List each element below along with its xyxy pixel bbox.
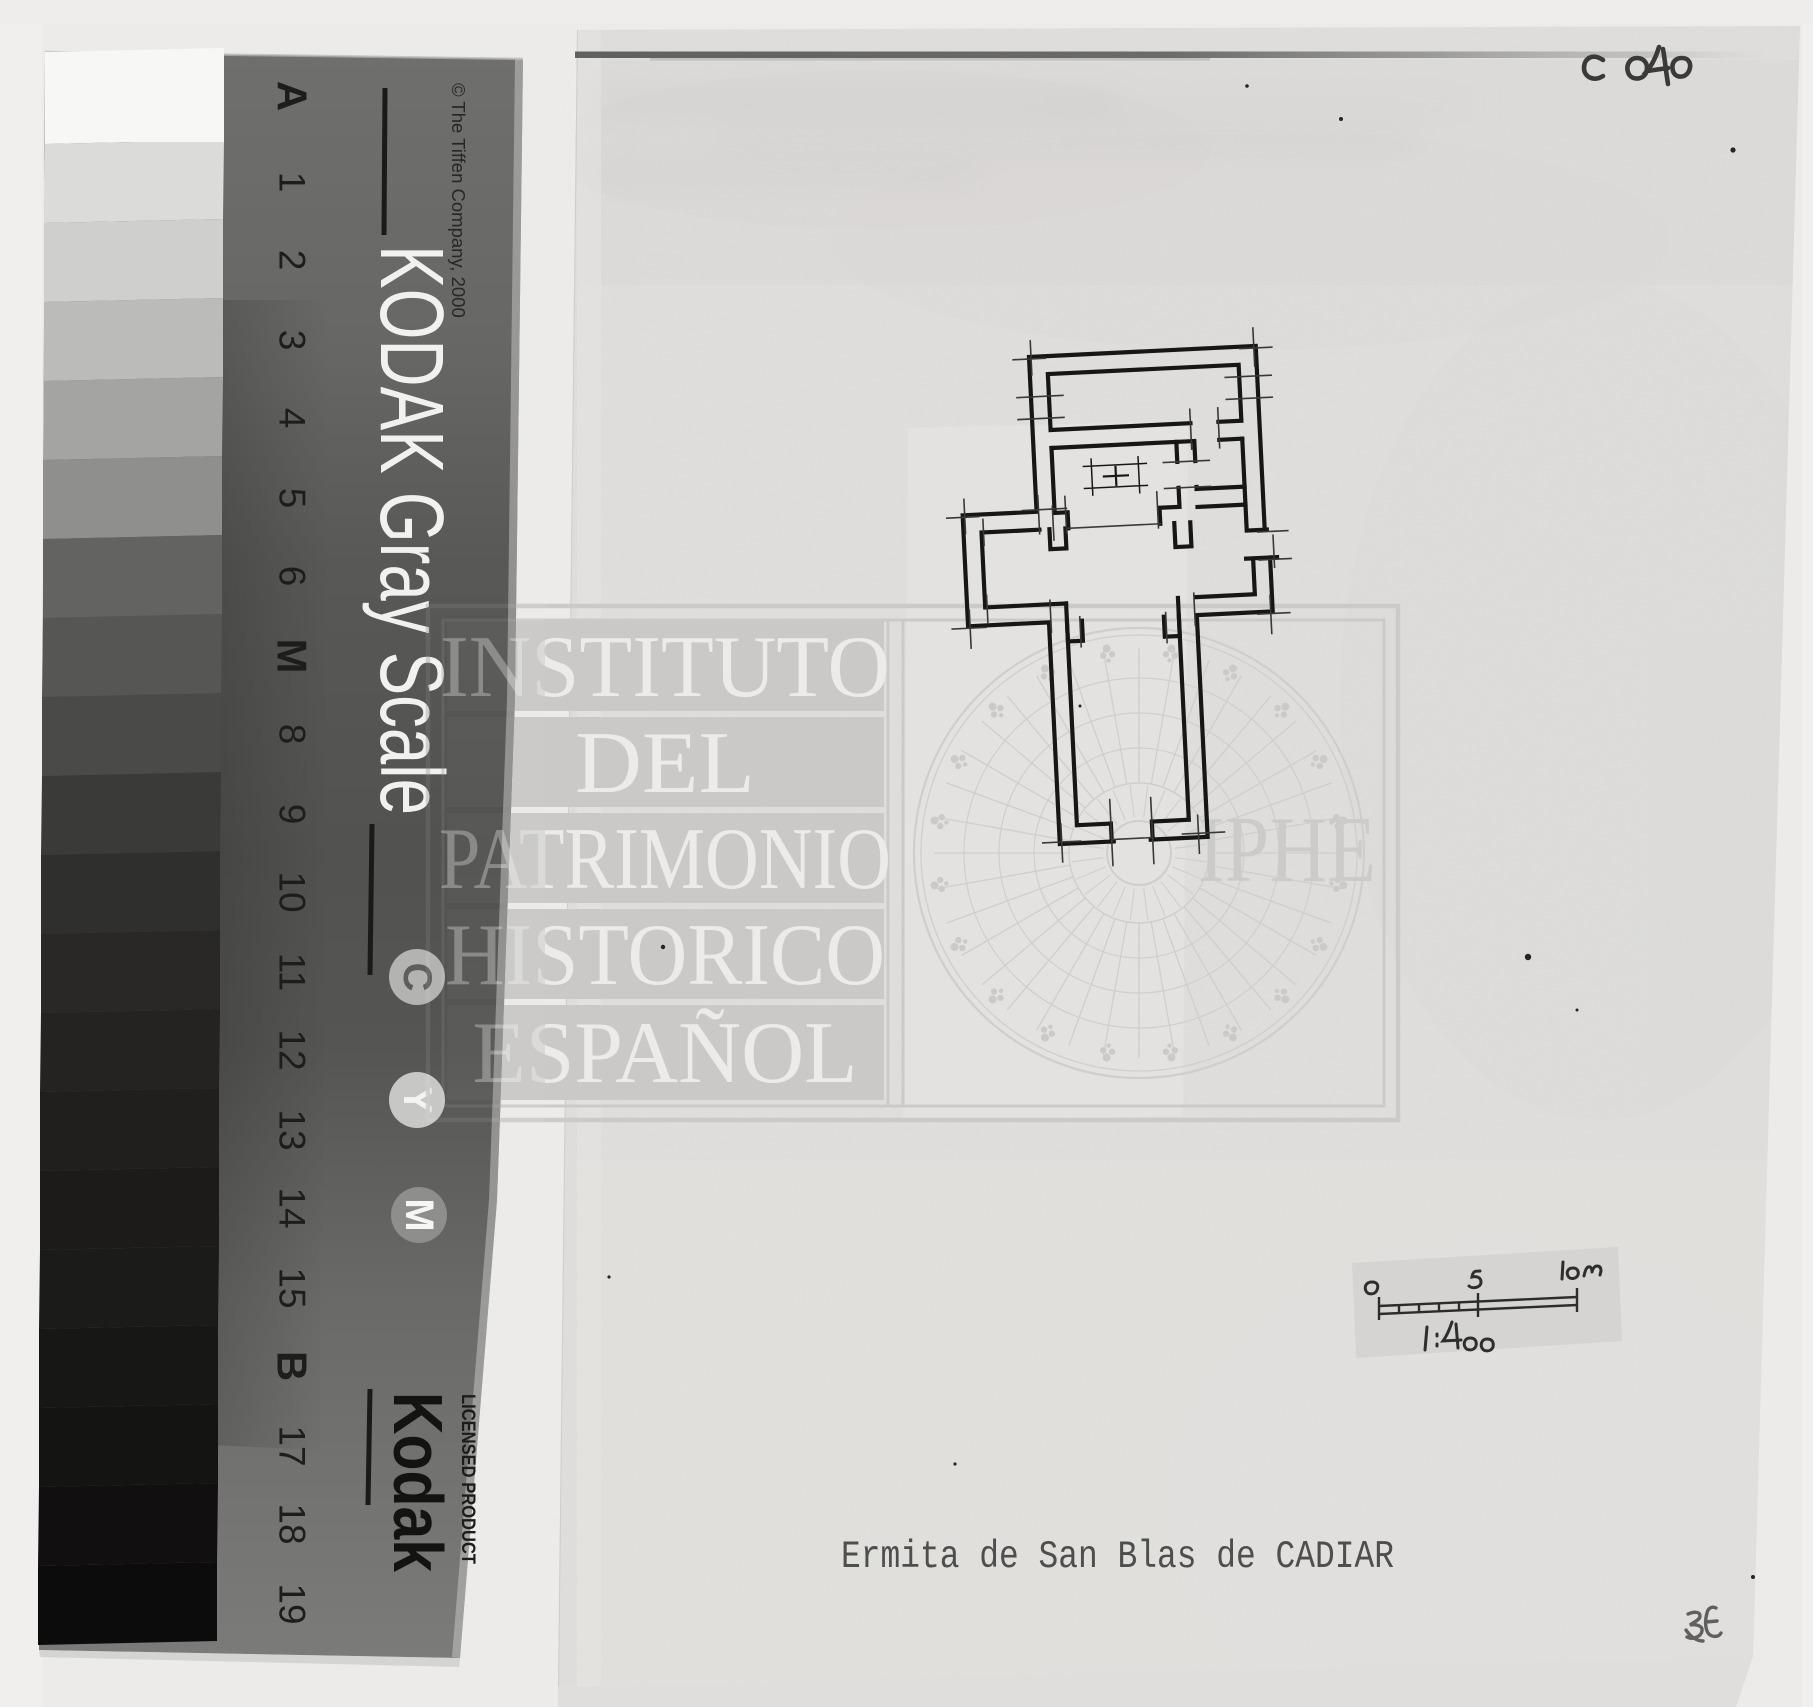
svg-text:Ermita de San Blas de CADIAR: Ermita de San Blas de CADIAR [841, 1535, 1394, 1579]
